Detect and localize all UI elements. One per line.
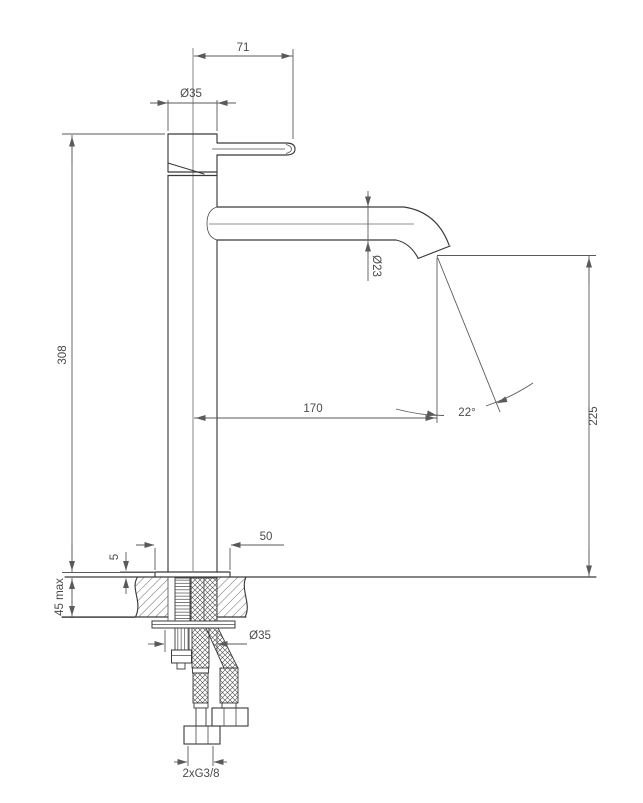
dimension-stream-angle: 22° [396,256,533,419]
head-base-ring [168,172,217,176]
label-22deg: 22° [458,407,475,419]
spout-outlet-face [418,246,450,259]
spout [207,207,450,259]
label-308: 308 [57,345,69,364]
stream-direction-line [437,256,500,412]
threaded-shank [175,578,190,621]
dimension-deck-thickness: 45 max [54,578,135,618]
hose-hex-nut-right [212,708,248,726]
label-71: 71 [237,42,250,54]
dimension-supply-connection: 2xG3/8 [174,746,227,780]
hose-hex-nut-left [184,726,220,744]
lever-handle [212,143,295,155]
label-o35-top: Ø35 [180,88,202,100]
dimension-handle-length: 71 [194,42,293,139]
base-plate [155,572,230,577]
dimension-base-diameter: 50 [136,531,284,570]
label-5: 5 [109,554,121,560]
faucet-dimension-drawing: 71 Ø35 308 Ø23 170 2 [0,0,643,803]
label-225: 225 [588,406,600,425]
label-o23: Ø23 [370,255,382,277]
label-170: 170 [303,403,322,415]
dimension-overall-height: 308 [57,134,165,573]
dimension-spout-reach: 170 [194,258,437,423]
faucet-outline [155,48,450,577]
label-2xg38: 2xG3/8 [182,768,219,780]
dimension-spout-diameter: Ø23 [368,191,382,281]
supply-hose-right [206,628,248,726]
label-o35-bottom: Ø35 [249,630,271,642]
clamping-washer [152,621,235,628]
label-45max: 45 max [54,578,66,616]
mounting-stud-nut [172,628,192,669]
label-50: 50 [260,531,273,543]
countertop-section [62,577,596,621]
technical-drawing-page: 71 Ø35 308 Ø23 170 2 [0,0,643,803]
